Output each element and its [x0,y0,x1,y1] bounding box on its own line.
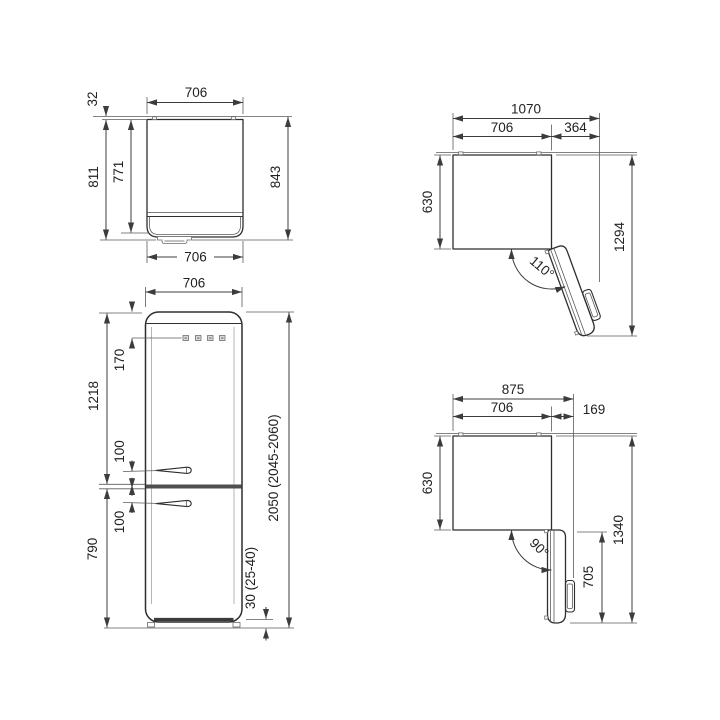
cabinet-outline [453,436,552,530]
dim-total-width: 875 [502,382,525,397]
dim-width-bottom: 706 [184,250,207,265]
dim-total-depth: 1294 [612,221,627,252]
foot [148,623,155,628]
hinge-mark [545,250,549,254]
rear-spacer [459,433,464,436]
foot [233,623,240,628]
hinge-mark [545,616,548,619]
dim-side-clearance: 169 [583,402,606,417]
dim-total-depth: 843 [268,166,283,189]
dim-body-depth: 771 [111,161,126,184]
view-top-open-110: 1070 706 364 630 110° 1294 [420,102,637,339]
rear-spacer [459,152,464,155]
door-handle [566,581,575,613]
dim-rear-gap: 32 [85,91,100,106]
dim-depth-incl-door: 811 [86,166,101,188]
dimension-drawing-canvas: 706 32 811 771 843 706 1070 706 [0,0,720,720]
dim-body-depth: 630 [420,191,435,214]
door-divider [146,485,242,489]
dim-upper-section: 1218 [86,381,101,411]
dim-lower-section: 790 [85,538,100,561]
dim-feet-height: 30 (25-40) [243,547,258,609]
dim-width: 706 [183,276,206,291]
view-top-open-90: 875 706 169 630 90° 705 [420,382,637,623]
dim-body-width: 706 [491,120,514,135]
rear-spacer [537,152,542,155]
dim-body-depth: 630 [420,472,435,495]
dim-upper-handle-gap: 100 [112,440,127,463]
rear-spacer [232,117,236,120]
door-handle-profile [158,237,192,244]
rear-spacer [537,433,542,436]
dimension-drawing: 706 32 811 771 843 706 1070 706 [0,0,720,720]
open-door [545,241,605,339]
dim-lower-handle-gap: 100 [112,511,127,534]
dim-total-depth: 1340 [611,515,626,545]
open-door [545,530,575,624]
dim-width-top: 706 [185,85,208,100]
dim-side-clearance: 364 [564,120,587,135]
view-front: 706 170 1218 790 [85,276,294,641]
dim-total-width: 1070 [511,102,541,117]
dim-door-depth: 705 [581,566,596,589]
fridge-outline [146,312,243,622]
hinge-mark [575,331,579,335]
cabinet-outline [453,155,552,249]
view-top-closed: 706 32 811 771 843 706 [85,85,293,265]
hinge-mark [545,530,548,533]
dim-body-width: 706 [491,400,514,415]
dim-total-height: 2050 (2045-2060) [266,414,281,521]
rear-spacer [153,117,157,120]
cabinet-outline [147,120,243,214]
dim-top-to-controls: 170 [112,349,127,372]
